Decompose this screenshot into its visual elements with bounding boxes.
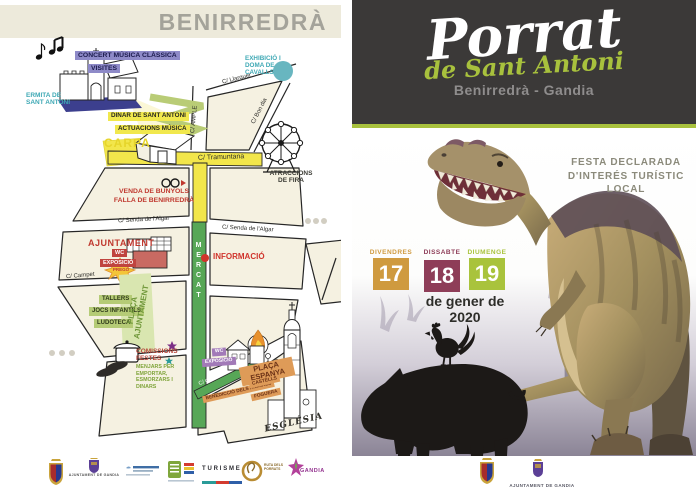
date-box-17: 17 [373,258,409,290]
label-wc-2: WC [212,348,227,356]
brochure-sheet: BENIRREDRÀ [0,0,696,499]
street-tramuntana: C/ Tramuntana [198,153,245,163]
right-page-poster: Porrat de Sant Antoni Benirredrà - Gandi… [352,0,696,499]
footer-crest-benirredra [478,458,496,491]
ferris-wheel-icon [259,121,302,172]
label-falla: FALLA DE BENIRREDRÀ [112,197,196,205]
label-venda-bunyols: VENDA DE BUNYOLS [112,188,196,196]
label-ajuntament: AJUNTAMENT [88,238,154,248]
sponsor-logo-ruta-porrats [241,459,263,488]
benirredra-crest-icon [47,459,65,487]
label-dinar: DINAR DE SANT ANTONI [108,112,189,121]
month-line: de gener de 2020 [410,293,520,325]
footer-crest-gandia [530,459,546,484]
gandia-label: GANDIA [300,468,325,474]
left-page-map: BENIRREDRÀ [0,0,348,499]
label-tallers: TALLERS [99,295,132,304]
date-label-divendres: DIVENDRES [369,249,413,256]
date-box-19: 19 [469,258,505,290]
label-mercat: MERCAT [194,242,202,302]
date-label-diumenge: DIUMENGE [465,249,509,256]
sponsor-text-logo [124,464,162,483]
turisme-label: TURISME [202,466,242,472]
label-wc-1: WC [112,249,127,257]
turisme-underline-icon [202,481,242,485]
label-atraccions: ATRACCIONS DE FIRA [266,170,316,185]
info-dot-icon [201,254,209,262]
color-logo-icon [168,461,196,483]
label-exposicio-1: EXPOSICIÓ [100,259,136,267]
gandia-crest-icon [86,458,102,474]
label-carpa: CARPA [104,137,151,151]
sponsor-logo-turisme: TURISME [202,466,242,490]
label-ermita: ERMITA DE SANT ANTONI [26,92,72,107]
music-notes-icon [36,37,64,60]
label-informacio: INFORMACIÓ [213,252,265,261]
sponsor-crest-benirredra [47,459,65,492]
footer-benirredra-crest-icon [478,458,496,486]
label-comissions: COMISSIONS FESTES [136,348,188,363]
label-menjars: MENJARS PER EMPORTAR, ESMORZARS I DINARS [136,364,182,390]
footer-gandia-crest-icon [530,459,546,479]
ruta-porrats-icon [241,459,263,483]
label-prego: PREGÓ [108,267,134,272]
sponsor-color-logo [168,461,196,488]
label-visites: VISITES [88,64,120,73]
sponsor-council-label: AJUNTAMENT DE GANDIA [66,473,122,477]
ruta-porrats-label: RUTA DELS PORRATS [264,463,288,472]
date-box-18: 18 [424,260,460,292]
label-actuacions: ACTUACIONS MÚSICA [115,125,190,134]
footer-council-label: AJUNTAMENT DE GANDIA [504,483,580,488]
festa-declaration: FESTA DECLARADA D'INTERÉS TURÍSTIC LOCAL [564,156,688,197]
label-concert: CONCERT MÚSICA CLÀSSICA [75,51,180,60]
text-logo-icon [124,464,162,478]
date-label-dissabte: DISSABTE [420,249,464,256]
label-exhibicio: EXHIBICIÓ I DOMA DE CAVALLS [245,55,299,77]
poster-header: Porrat de Sant Antoni Benirredrà - Gandi… [352,0,696,124]
